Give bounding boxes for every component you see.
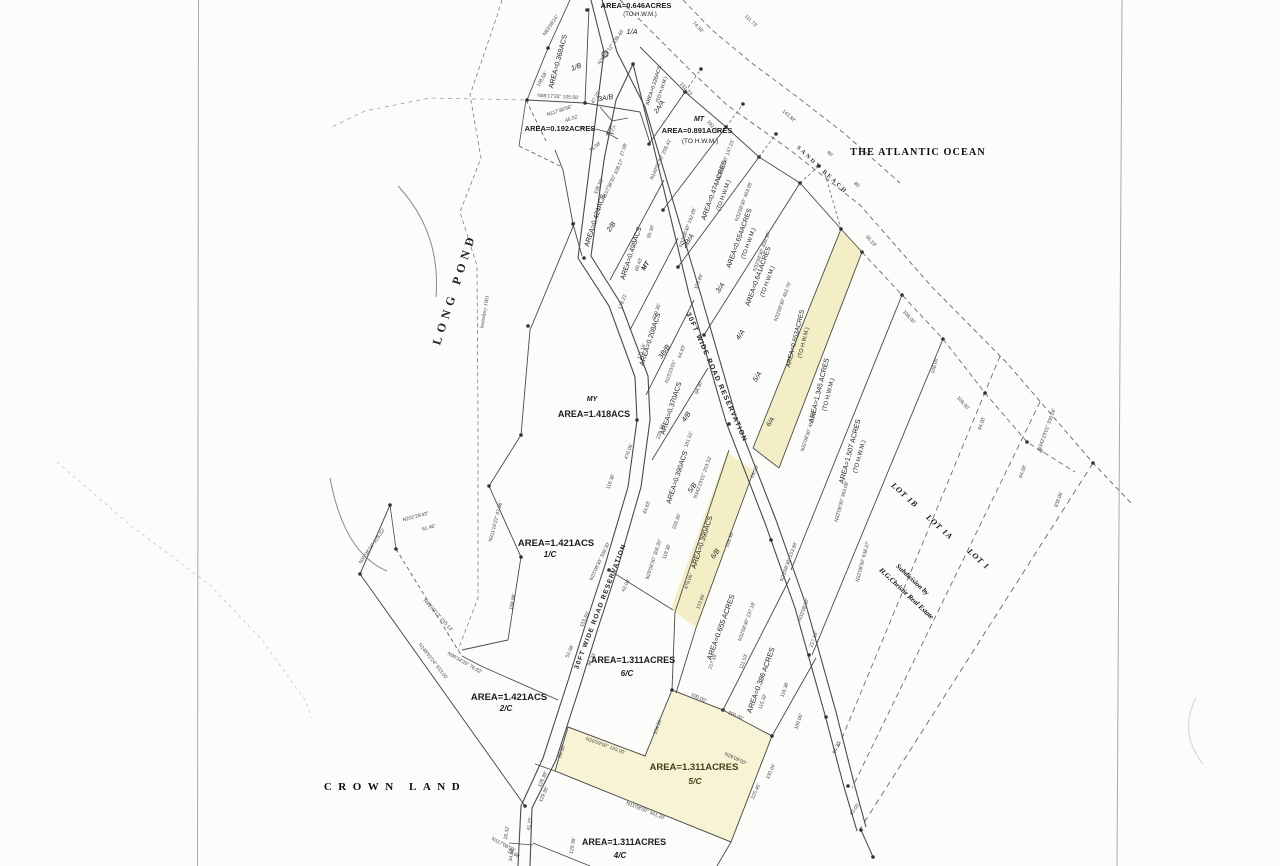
svg-text:AREA=0.891ACRES: AREA=0.891ACRES bbox=[662, 126, 733, 135]
svg-text:2/C: 2/C bbox=[499, 704, 513, 713]
svg-text:AREA=1.418ACS: AREA=1.418ACS bbox=[558, 409, 630, 419]
svg-text:(TO H.W.M.): (TO H.W.M.) bbox=[623, 12, 657, 18]
svg-text:AREA=0.646ACRES: AREA=0.646ACRES bbox=[601, 1, 672, 10]
svg-text:THE ATLANTIC OCEAN: THE ATLANTIC OCEAN bbox=[850, 147, 986, 158]
svg-text:AREA=1.311ACRES: AREA=1.311ACRES bbox=[591, 655, 675, 665]
svg-text:AREA=1.311ACRES: AREA=1.311ACRES bbox=[650, 762, 739, 773]
svg-text:4/C: 4/C bbox=[613, 851, 627, 860]
svg-text:AREA=0.192ACRES: AREA=0.192ACRES bbox=[525, 124, 596, 133]
svg-text:MY: MY bbox=[587, 396, 599, 403]
svg-text:6/C: 6/C bbox=[621, 669, 634, 678]
svg-text:AREA=1.421ACS: AREA=1.421ACS bbox=[518, 538, 594, 549]
svg-text:(TO H.W.M.): (TO H.W.M.) bbox=[682, 138, 718, 145]
svg-text:5/C: 5/C bbox=[688, 776, 702, 786]
svg-text:AREA=1.421ACS: AREA=1.421ACS bbox=[471, 692, 547, 703]
svg-text:1/C: 1/C bbox=[544, 550, 557, 559]
svg-text:CROWN LAND: CROWN LAND bbox=[324, 781, 466, 793]
svg-text:AREA=1.311ACRES: AREA=1.311ACRES bbox=[582, 837, 666, 847]
svg-text:MT: MT bbox=[694, 116, 705, 123]
svg-text:1/A: 1/A bbox=[626, 27, 637, 36]
